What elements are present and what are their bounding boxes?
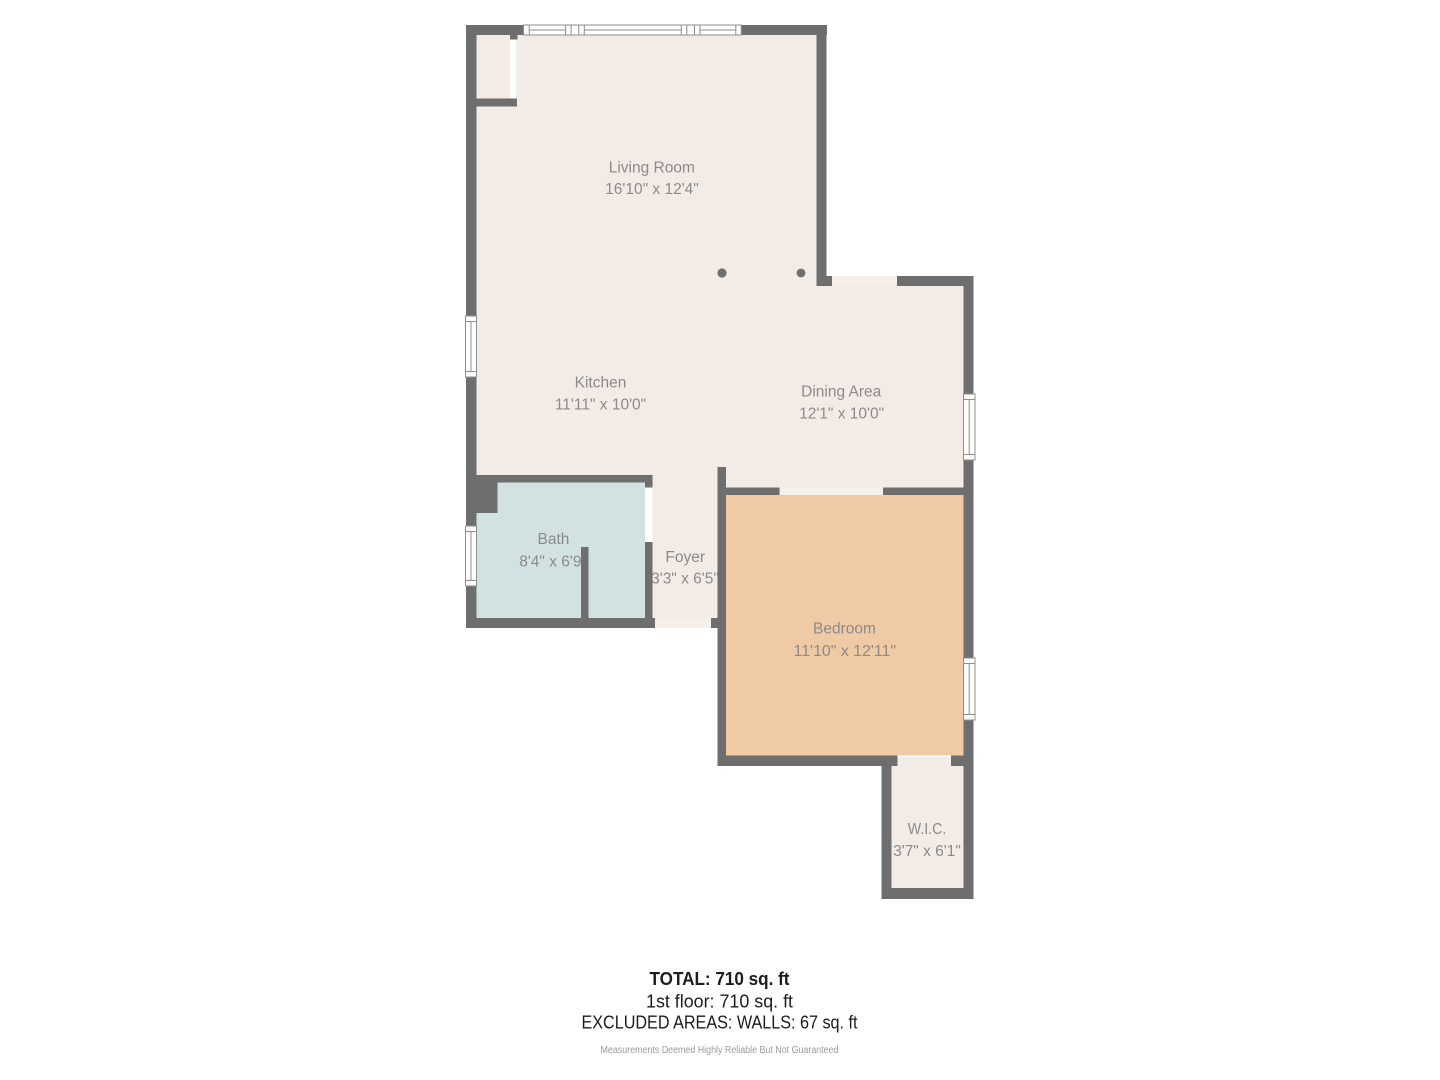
svg-text:3'7" x 6'1": 3'7" x 6'1" (893, 843, 961, 860)
svg-text:Dining Area: Dining Area (801, 384, 882, 401)
svg-text:Living Room: Living Room (609, 160, 695, 177)
svg-text:Kitchen: Kitchen (575, 375, 627, 392)
svg-text:W.I.C.: W.I.C. (908, 821, 947, 838)
svg-text:11'10" x 12'11": 11'10" x 12'11" (794, 643, 897, 660)
svg-text:Foyer: Foyer (665, 549, 705, 566)
svg-text:12'1" x 10'0": 12'1" x 10'0" (799, 405, 884, 422)
svg-text:TOTAL: 710 sq. ft: TOTAL: 710 sq. ft (650, 969, 790, 989)
svg-text:16'10" x 12'4": 16'10" x 12'4" (605, 181, 699, 198)
svg-text:EXCLUDED AREAS: WALLS: 67 sq.: EXCLUDED AREAS: WALLS: 67 sq. ft (582, 1012, 858, 1032)
svg-text:8'4" x 6'9": 8'4" x 6'9" (519, 553, 587, 570)
svg-text:1st floor: 710 sq. ft: 1st floor: 710 sq. ft (646, 992, 793, 1012)
svg-text:Bath: Bath (538, 531, 570, 548)
svg-text:11'11" x 10'0": 11'11" x 10'0" (555, 397, 646, 414)
svg-text:3'3" x 6'5": 3'3" x 6'5" (651, 570, 719, 587)
svg-text:Measurements Deemed Highly Rel: Measurements Deemed Highly Reliable But … (601, 1045, 839, 1056)
svg-text:Bedroom: Bedroom (813, 621, 876, 638)
